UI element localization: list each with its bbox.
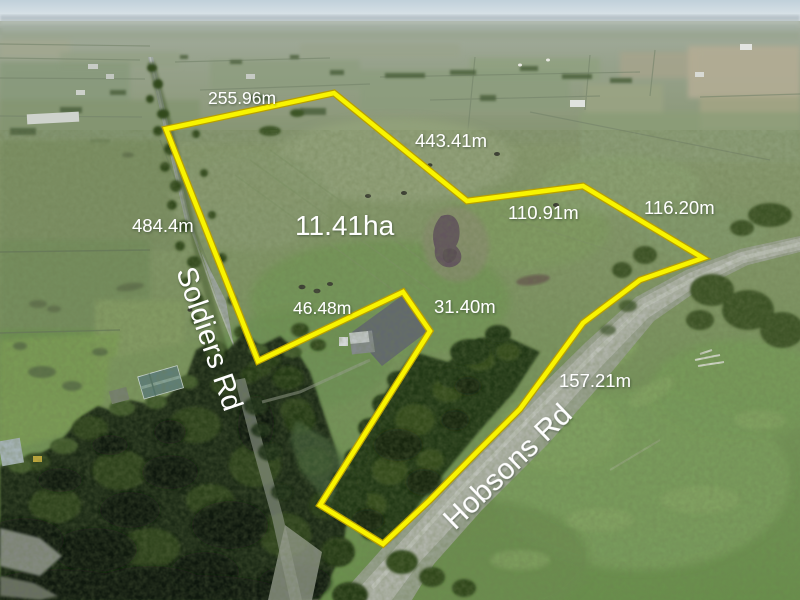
svg-text:157.21m: 157.21m bbox=[559, 370, 631, 391]
svg-text:11.41ha: 11.41ha bbox=[295, 210, 395, 241]
svg-text:484.4m: 484.4m bbox=[132, 215, 194, 236]
svg-text:116.20m: 116.20m bbox=[644, 197, 715, 218]
svg-text:110.91m: 110.91m bbox=[508, 202, 579, 223]
svg-text:46.48m: 46.48m bbox=[293, 298, 351, 318]
svg-text:443.41m: 443.41m bbox=[415, 130, 487, 151]
svg-text:255.96m: 255.96m bbox=[208, 88, 276, 108]
svg-text:31.40m: 31.40m bbox=[434, 296, 496, 317]
